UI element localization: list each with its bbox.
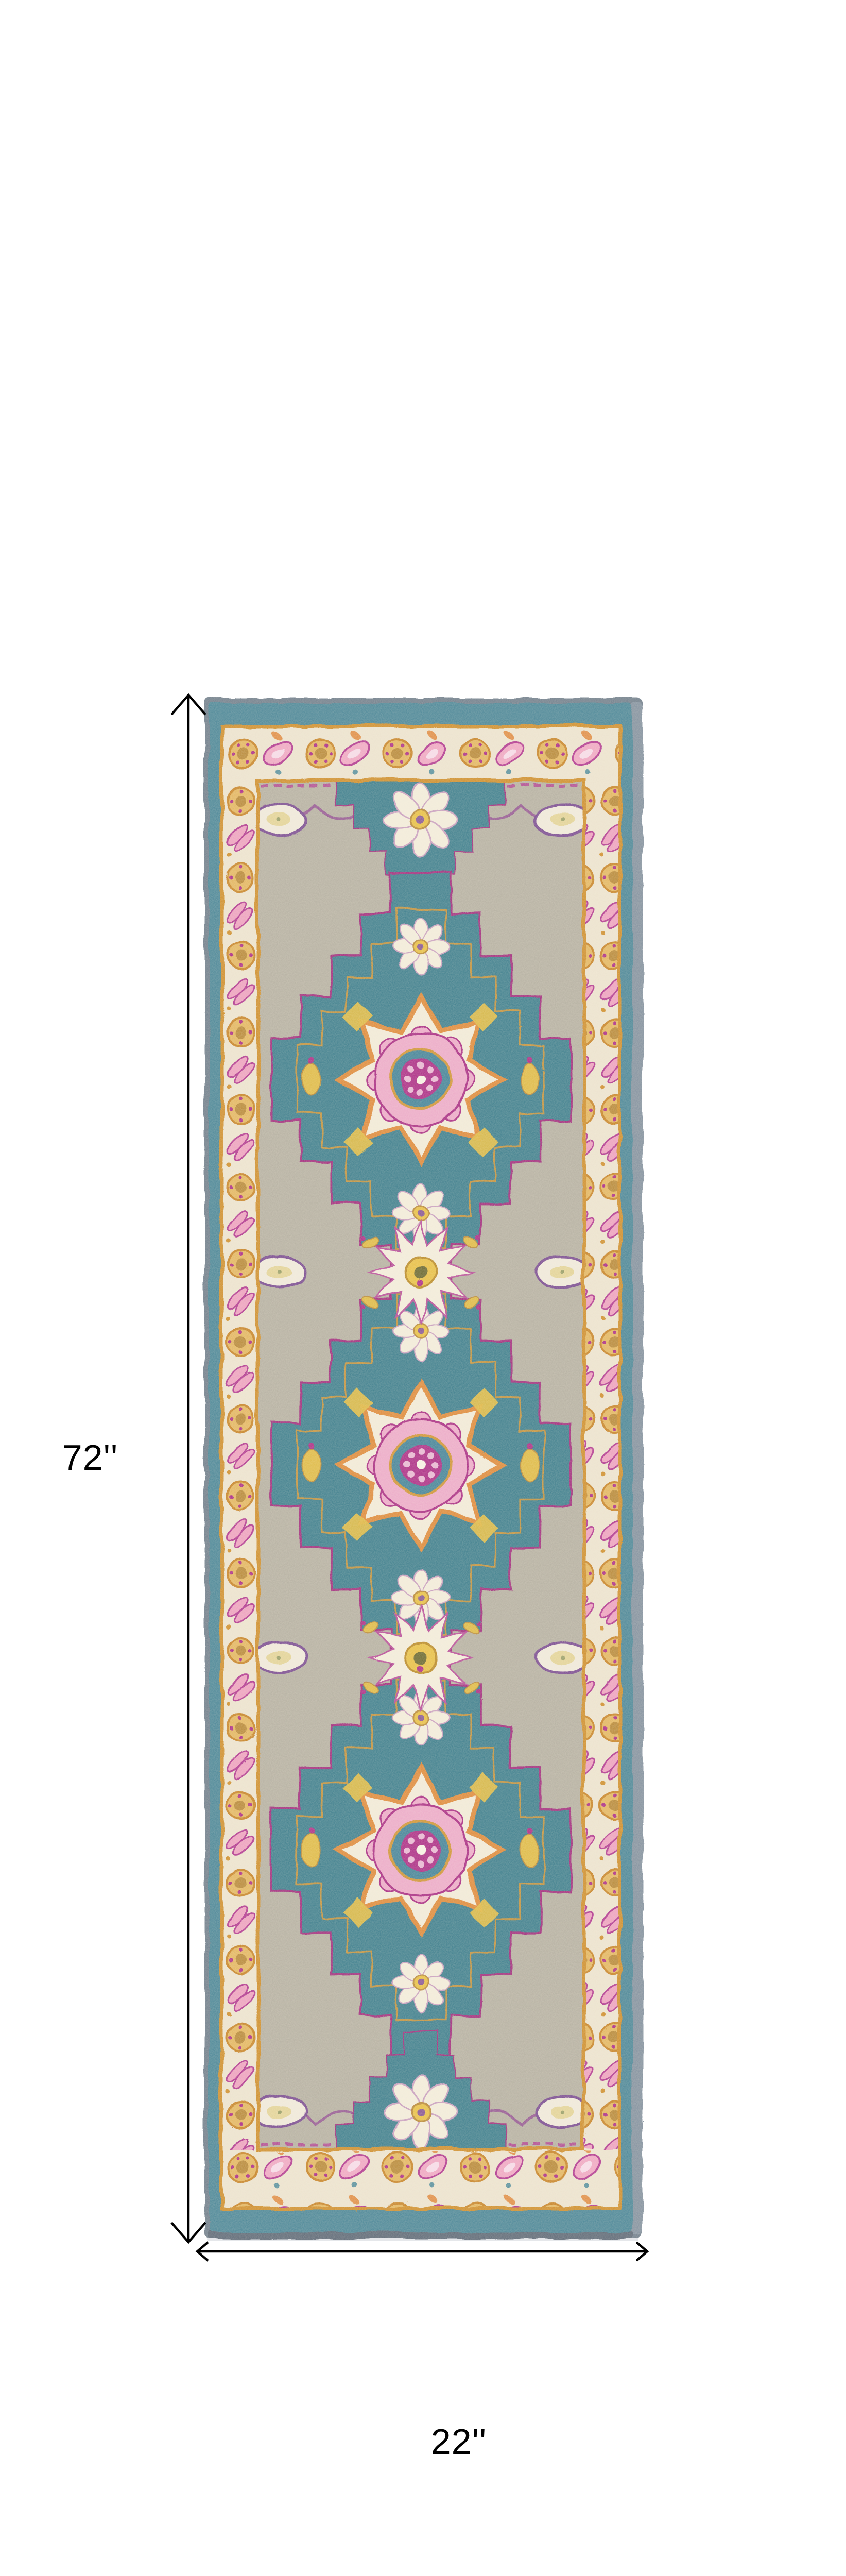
height-dimension-label: 72'' [49, 1436, 131, 1479]
rug-border-top-pattern [222, 727, 617, 779]
rug-binding-right [630, 701, 642, 2234]
product-dimension-image: 72'' 22'' [0, 0, 846, 2576]
width-arrow [197, 2242, 647, 2261]
rug-flower-top [383, 782, 457, 856]
rug-photo [203, 665, 642, 2262]
width-dimension-label: 22'' [418, 2420, 500, 2463]
rug-border-right-pattern [583, 779, 617, 2148]
rug-border-left-pattern [222, 779, 256, 2148]
rug-border-bottom-pattern [222, 2150, 617, 2206]
rug-flower-bottom [383, 2074, 457, 2148]
height-arrow [171, 695, 205, 2242]
dimension-diagram-scene [0, 0, 846, 2576]
